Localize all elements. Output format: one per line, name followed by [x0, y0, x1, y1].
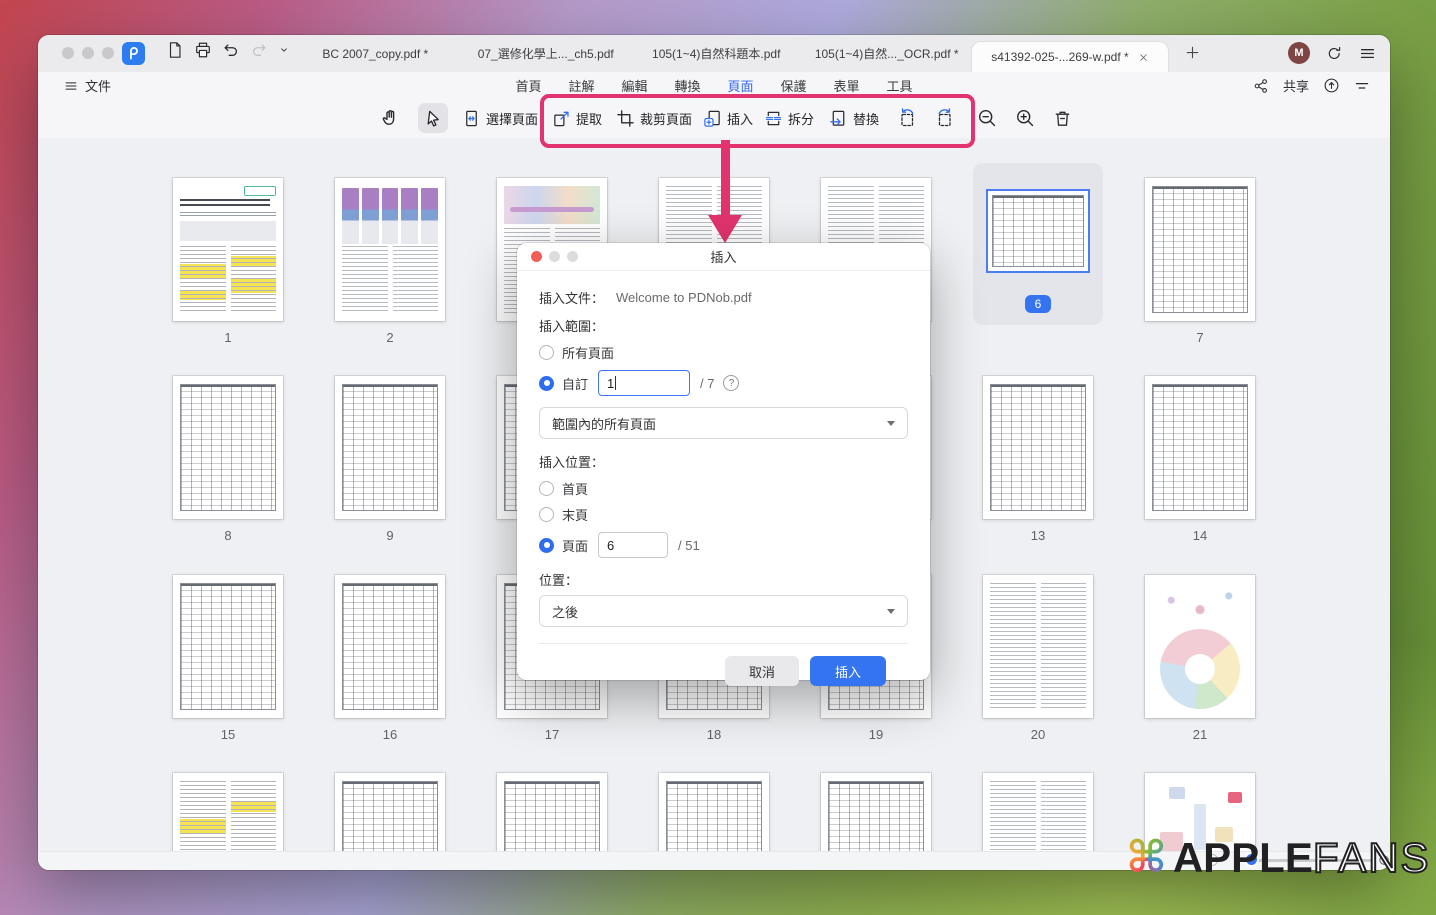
location-value: 之後: [552, 602, 578, 621]
selected-page-badge: 6: [1025, 295, 1052, 313]
undo-icon[interactable]: [222, 41, 240, 59]
custom-range-input[interactable]: 1: [598, 370, 690, 396]
app-window: BC 2007_copy.pdf *07_選修化學上..._ch5.pdf105…: [38, 35, 1390, 870]
page-toolbar: 選擇頁面 提取裁剪頁面插入拆分替換: [38, 99, 1390, 139]
page-thumbnail[interactable]: [173, 575, 283, 718]
close-window-button[interactable]: [62, 47, 74, 59]
page-position-option[interactable]: 頁面 6 / 51: [539, 531, 908, 559]
annotation-arrow: [721, 140, 730, 217]
desktop: { "titlebar": { "tabs": [ {"label": "BC …: [0, 0, 1436, 915]
page-cell[interactable]: 20: [957, 575, 1119, 742]
all-pages-radio[interactable]: [539, 345, 554, 360]
page-number: 18: [707, 727, 721, 742]
new-file-icon[interactable]: [166, 41, 184, 59]
page-number: 1: [224, 330, 231, 345]
page-cell[interactable]: 9: [309, 376, 471, 543]
page-cell[interactable]: 16: [309, 575, 471, 742]
rotate-right-icon: [935, 108, 955, 128]
range-mode-dropdown[interactable]: 範圍內的所有頁面: [539, 407, 908, 439]
select-tool-button[interactable]: [418, 103, 448, 133]
page-number: 16: [383, 727, 397, 742]
range-mode-value: 範圍內的所有頁面: [552, 414, 656, 433]
rotate-left-icon: [897, 108, 917, 128]
ribbon-tab-active[interactable]: 頁面: [728, 76, 754, 95]
toolbar-button-label: 替換: [853, 109, 879, 128]
page-position-radio[interactable]: [539, 538, 554, 553]
zoom-in-button[interactable]: [1015, 103, 1035, 133]
zoom-out-icon: [977, 108, 997, 128]
tab-label: s41392-025-...269-w.pdf *: [991, 50, 1128, 64]
page-thumbnail[interactable]: [1145, 575, 1255, 718]
first-page-radio[interactable]: [539, 481, 554, 496]
page-thumbnail[interactable]: [986, 189, 1090, 273]
page-total: / 51: [678, 538, 700, 553]
ribbon-tab-item[interactable]: 表單: [834, 76, 860, 95]
app-logo-icon: [122, 42, 145, 65]
page-cell[interactable]: 2: [309, 178, 471, 345]
page-thumbnail[interactable]: [335, 575, 445, 718]
page-thumbnail[interactable]: [173, 376, 283, 519]
titlebar: BC 2007_copy.pdf *07_選修化學上..._ch5.pdf105…: [38, 35, 1390, 72]
page-number: 15: [221, 727, 235, 742]
minimize-window-button[interactable]: [82, 47, 94, 59]
share-label[interactable]: 共享: [1283, 76, 1309, 95]
last-page-option[interactable]: 末頁: [539, 503, 908, 525]
print-icon[interactable]: [194, 41, 212, 59]
page-number: 21: [1193, 727, 1207, 742]
ribbon-tabs: 首頁註解編輯轉換頁面保護表單工具: [515, 72, 912, 99]
toolbar-button-label: 拆分: [788, 109, 814, 128]
location-label: 位置：: [539, 570, 578, 589]
history-sync-icon[interactable]: [1326, 45, 1343, 62]
insert-position-label: 插入位置：: [539, 452, 604, 471]
page-thumbnail[interactable]: [983, 376, 1093, 519]
page-cell[interactable]: 13: [957, 376, 1119, 543]
help-icon[interactable]: ?: [723, 375, 739, 391]
file-menu-icon: [64, 79, 78, 93]
first-page-option[interactable]: 首頁: [539, 477, 908, 499]
last-page-radio[interactable]: [539, 507, 554, 522]
hand-tool-button[interactable]: [380, 103, 400, 133]
page-cell[interactable]: 15: [147, 575, 309, 742]
cancel-button[interactable]: 取消: [725, 656, 799, 686]
upload-icon[interactable]: [1323, 77, 1340, 94]
custom-range-total: / 7: [700, 376, 714, 391]
page-thumbnail[interactable]: [173, 178, 283, 321]
menu-icon[interactable]: [1359, 45, 1376, 62]
page-thumbnail[interactable]: [335, 178, 445, 321]
custom-range-option[interactable]: 自訂 1 / 7 ?: [539, 369, 908, 397]
tab[interactable]: s41392-025-...269-w.pdf *: [972, 42, 1168, 72]
share-icon[interactable]: [1253, 78, 1269, 94]
page-number: 13: [1031, 528, 1045, 543]
tab-label: BC 2007_copy.pdf *: [322, 47, 428, 61]
select-pages-button[interactable]: 選擇頁面: [462, 103, 538, 133]
split-button[interactable]: 拆分: [764, 103, 814, 133]
select-pages-icon: [462, 109, 481, 128]
trash-icon: [1053, 109, 1072, 128]
ribbon-tab-item[interactable]: 轉換: [674, 76, 700, 95]
annotation-arrow-head: [708, 215, 742, 243]
applefans-watermark: ⌘ APPLE FANS: [1126, 836, 1431, 880]
redo-icon[interactable]: [250, 41, 268, 59]
insert-confirm-button[interactable]: 插入: [810, 656, 886, 686]
insert-dialog: 插入 插入文件： Welcome to PDNob.pdf 插入範圍： 所有頁面…: [517, 243, 930, 680]
page-thumbnail[interactable]: [983, 575, 1093, 718]
page-number: 17: [545, 727, 559, 742]
all-pages-label: 所有頁面: [562, 343, 614, 362]
rotate-left-button[interactable]: [897, 103, 917, 133]
replace-icon: [829, 109, 848, 128]
replace-button[interactable]: 替換: [829, 103, 879, 133]
toolbar-button-label: 插入: [727, 109, 753, 128]
page-number: 20: [1031, 727, 1045, 742]
first-page-label: 首頁: [562, 479, 588, 498]
tab[interactable]: BC 2007_copy.pdf *: [290, 35, 460, 72]
hand-icon: [380, 108, 400, 128]
page-number: 9: [386, 528, 393, 543]
page-cell[interactable]: 7: [1119, 178, 1281, 345]
insert-file-label: 插入文件：: [539, 288, 604, 307]
page-cell[interactable]: 8: [147, 376, 309, 543]
custom-range-label: 自訂: [562, 374, 588, 393]
toolbar-button-label: 提取: [576, 109, 602, 128]
last-page-label: 末頁: [562, 505, 588, 524]
rotate-right-button[interactable]: [935, 103, 955, 133]
new-tab-button[interactable]: [1185, 45, 1200, 60]
cursor-icon: [424, 109, 443, 128]
page-cell[interactable]: 21: [1119, 575, 1281, 742]
tab-close-icon[interactable]: [1138, 52, 1149, 63]
page-number-input[interactable]: 6: [598, 532, 668, 558]
insert-file-value: Welcome to PDNob.pdf: [616, 290, 752, 305]
crop-button[interactable]: 裁剪頁面: [616, 103, 692, 133]
watermark-light-text: FANS: [1313, 836, 1431, 880]
ribbon-tab-item[interactable]: 工具: [887, 76, 913, 95]
file-menu-label: 文件: [85, 76, 111, 95]
extract-button[interactable]: 提取: [552, 103, 602, 133]
tab[interactable]: 105(1~4)自然..._OCR.pdf *: [801, 35, 971, 72]
page-cell[interactable]: 14: [1119, 376, 1281, 543]
tab[interactable]: 105(1~4)自然科題本.pdf: [631, 35, 801, 72]
page-thumbnail[interactable]: [335, 376, 445, 519]
ribbon-tab-item[interactable]: 註解: [568, 76, 594, 95]
chevron-down-icon[interactable]: [278, 44, 290, 56]
zoom-in-icon: [1015, 108, 1035, 128]
all-pages-option[interactable]: 所有頁面: [539, 341, 908, 363]
page-cell[interactable]: 1: [147, 178, 309, 345]
page-number: 14: [1193, 528, 1207, 543]
tab[interactable]: 07_選修化學上..._ch5.pdf: [460, 35, 630, 72]
ribbon-tab-item[interactable]: 首頁: [515, 76, 541, 95]
crop-icon: [616, 109, 635, 128]
tab-label: 07_選修化學上..._ch5.pdf: [478, 45, 614, 62]
tab-label: 105(1~4)自然..._OCR.pdf *: [815, 45, 959, 62]
menubar: 文件 首頁註解編輯轉換頁面保護表單工具 共享: [38, 72, 1390, 99]
insert-range-label: 插入範圍：: [539, 316, 604, 335]
tab-strip: BC 2007_copy.pdf *07_選修化學上..._ch5.pdf105…: [290, 35, 1168, 72]
page-number: 8: [224, 528, 231, 543]
dialog-title: 插入: [710, 247, 736, 266]
select-pages-label: 選擇頁面: [486, 109, 538, 128]
dialog-minimize-button: [549, 251, 560, 262]
avatar[interactable]: M: [1288, 42, 1310, 64]
zoom-out-button[interactable]: [977, 103, 997, 133]
page-cell[interactable]: 6: [973, 163, 1103, 325]
page-number: 19: [869, 727, 883, 742]
dialog-titlebar: 插入: [517, 243, 930, 271]
zoom-window-button[interactable]: [102, 47, 114, 59]
collapse-toolbar-icon[interactable]: [1354, 78, 1370, 94]
delete-page-button[interactable]: [1053, 103, 1072, 133]
page-position-label: 頁面: [562, 536, 588, 555]
dialog-zoom-button: [567, 251, 578, 262]
dialog-close-button[interactable]: [531, 251, 542, 262]
custom-range-radio[interactable]: [539, 376, 554, 391]
ribbon-tab-item[interactable]: 保護: [781, 76, 807, 95]
page-number: 7: [1196, 330, 1203, 345]
command-logo-icon: ⌘: [1126, 836, 1167, 880]
ribbon-tab-item[interactable]: 編輯: [621, 76, 647, 95]
tab-label: 105(1~4)自然科題本.pdf: [652, 45, 780, 62]
page-thumbnail[interactable]: [1145, 376, 1255, 519]
watermark-bold-text: APPLE: [1173, 836, 1313, 880]
page-number: 2: [386, 330, 393, 345]
split-icon: [764, 109, 783, 128]
file-menu[interactable]: 文件: [64, 72, 111, 99]
extract-icon: [552, 109, 571, 128]
page-thumbnail[interactable]: [1145, 178, 1255, 321]
insert-icon: [703, 109, 722, 128]
toolbar-button-label: 裁剪頁面: [640, 109, 692, 128]
location-dropdown[interactable]: 之後: [539, 595, 908, 627]
insert-button[interactable]: 插入: [703, 103, 753, 133]
